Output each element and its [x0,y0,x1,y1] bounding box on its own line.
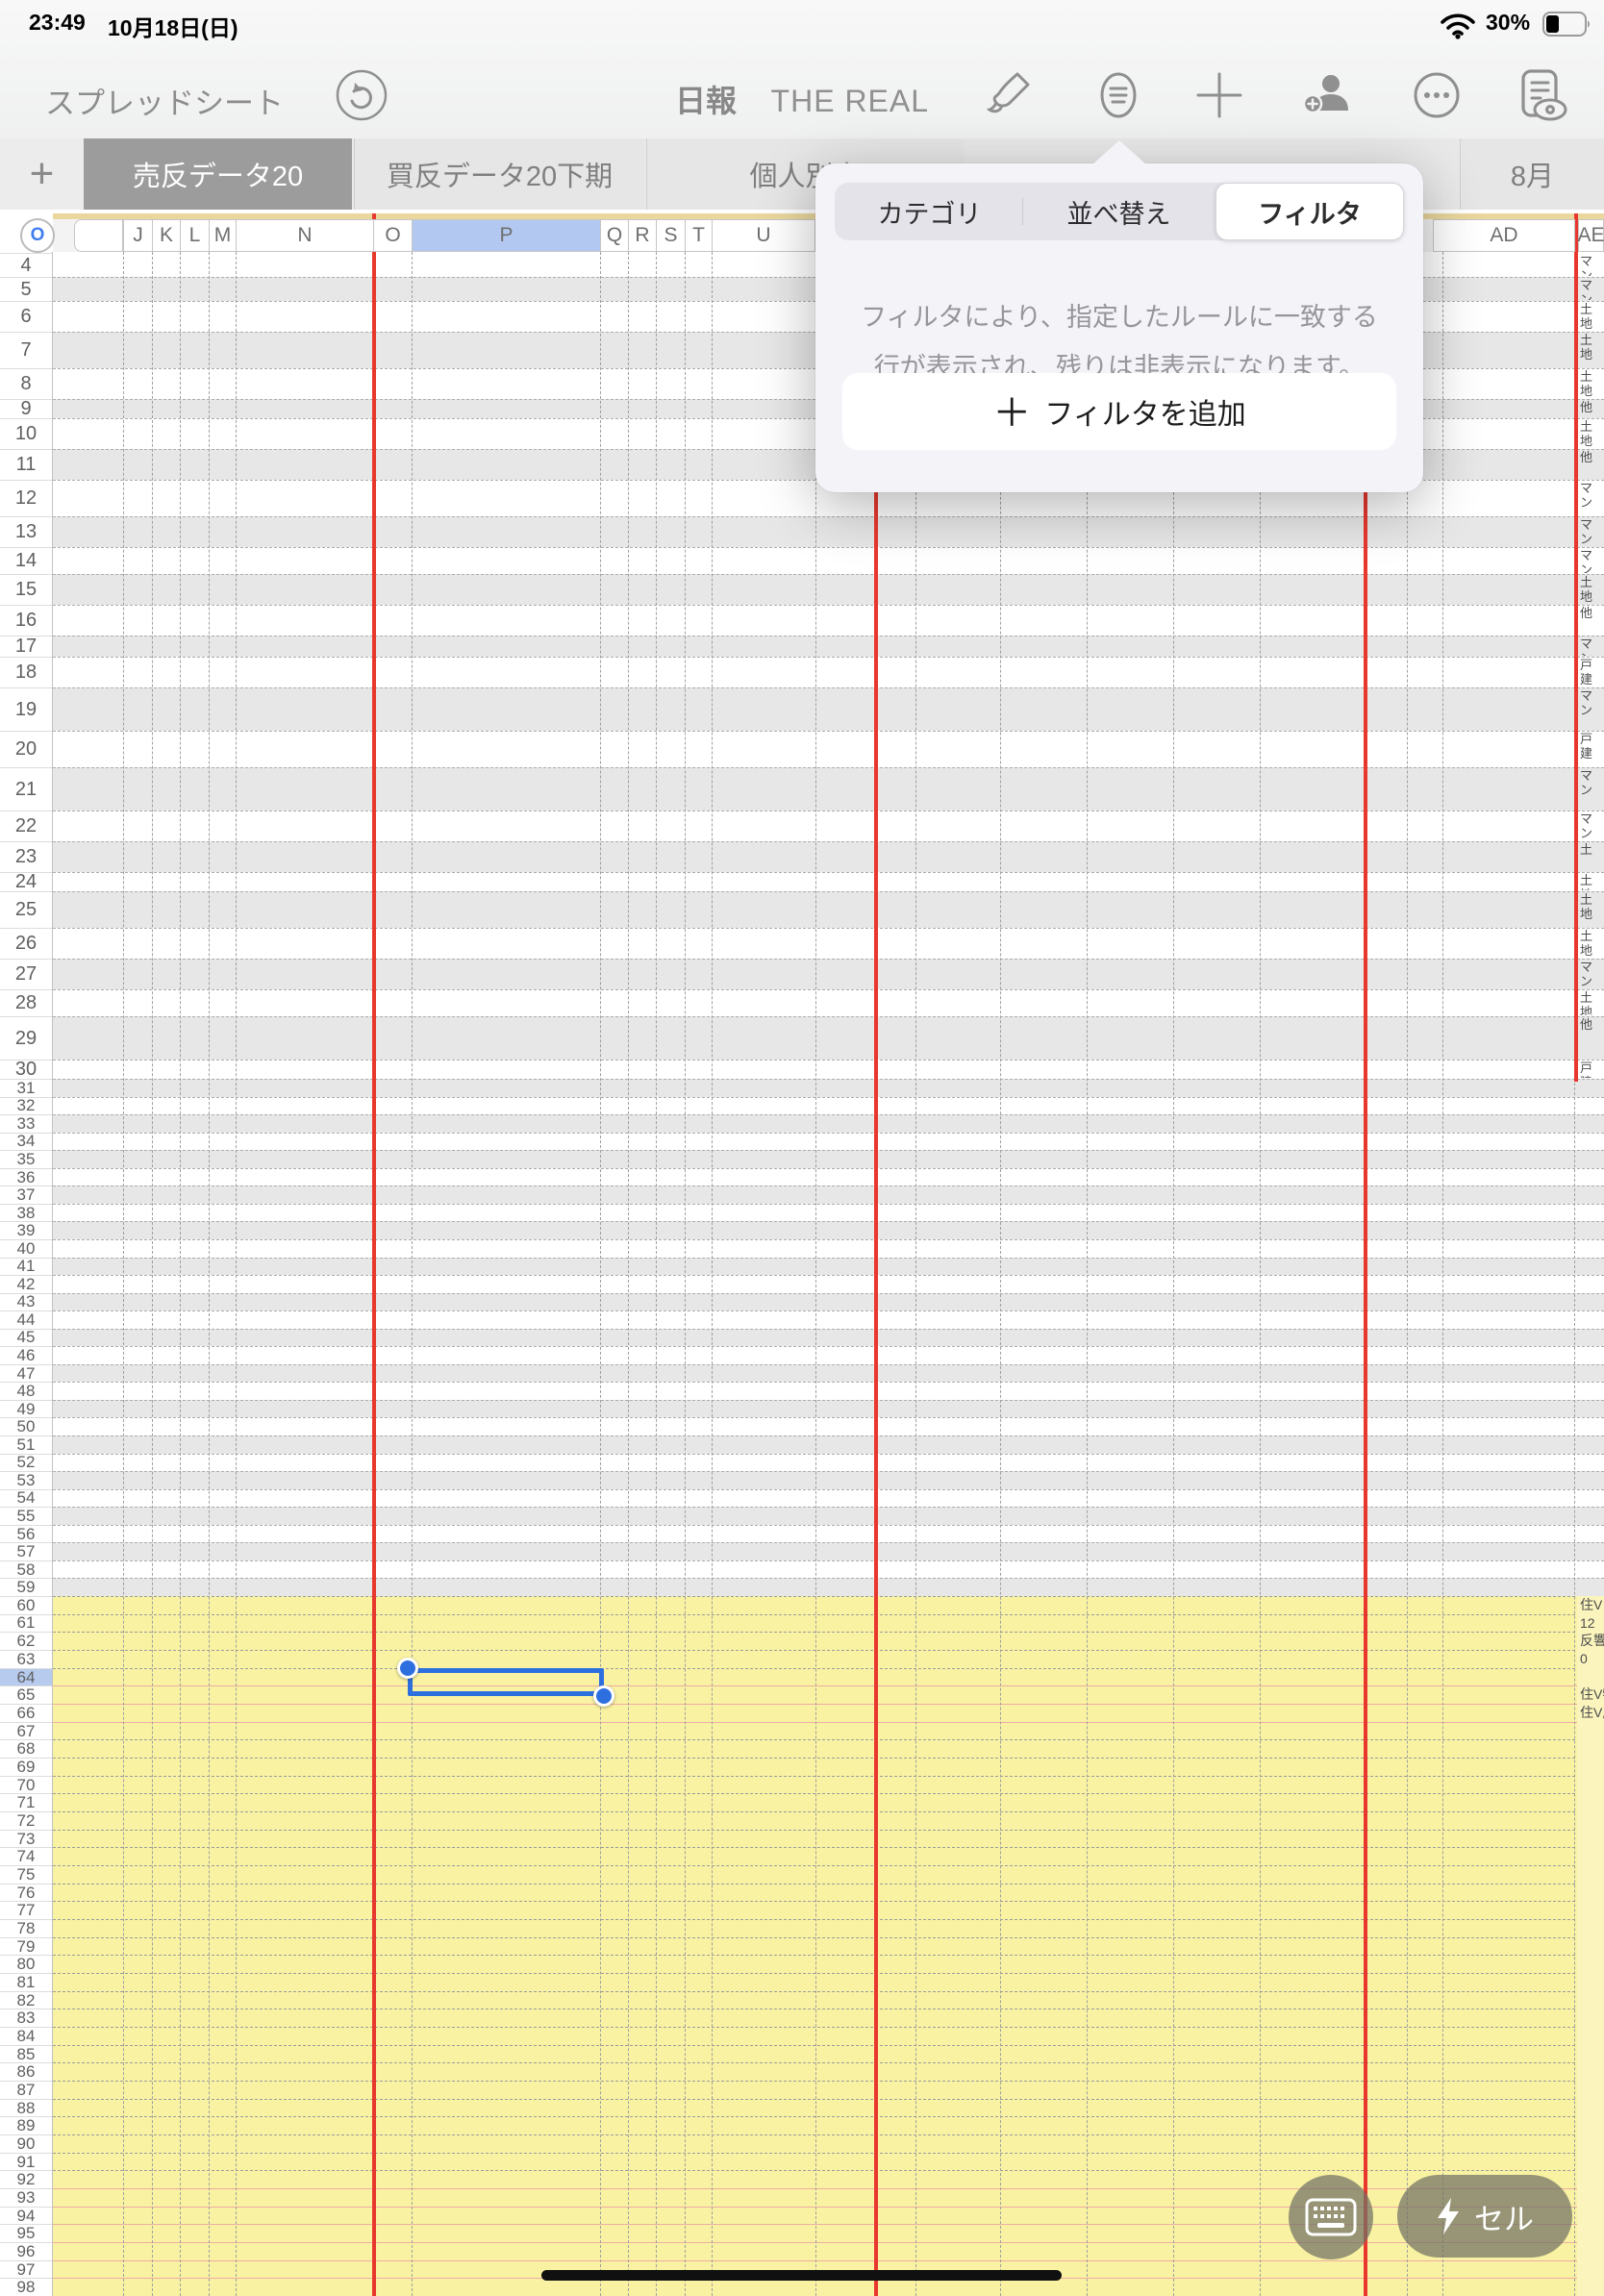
grid-row-70 [53,1776,1604,1794]
grid-vline-17 [1407,252,1408,2296]
grid-vline-14 [1087,252,1088,2296]
grid-row-45 [53,1329,1604,1347]
row-number-72[interactable]: 72 [0,1811,52,1830]
grid-row-86 [53,2062,1604,2081]
grid-row-48 [53,1382,1604,1400]
keyboard-button[interactable] [1289,2175,1373,2259]
selection-handle-top-left[interactable] [397,1658,418,1679]
grid-vline-8 [656,252,657,2296]
column-header-Q[interactable]: Q [600,219,629,252]
ae-cell-row-28[interactable]: 土地 [1580,990,1604,1015]
status-date: 10月18日(日) [108,10,238,42]
column-header-blank[interactable] [74,219,123,252]
row-number-9[interactable]: 9 [0,399,52,418]
ae-cell-row-62[interactable]: 反響 [1580,1634,1604,1650]
row-number-92[interactable]: 92 [0,2170,52,2188]
grid-row-14 [53,547,1604,574]
row-number-37[interactable]: 37 [0,1185,52,1204]
grid-vline-18 [1442,252,1443,2296]
row-number-78[interactable]: 78 [0,1919,52,1937]
row-number-71[interactable]: 71 [0,1793,52,1811]
ae-cell-row-66[interactable]: 住V成 [1580,1706,1604,1722]
grid-vline-16 [1260,252,1261,2296]
column-header-N[interactable]: N [236,219,374,252]
red-guide-line-3 [1364,213,1367,2296]
row-number-82[interactable]: 82 [0,1991,52,2009]
grid-row-65 [53,1685,1604,1704]
row-number-22[interactable]: 22 [0,811,52,841]
sheet-tab-1[interactable]: 売反データ20 [84,138,352,210]
row-number-8[interactable]: 8 [0,368,52,399]
grid-vline-5 [412,252,413,2296]
ae-cell-row-25[interactable]: 土地 [1580,892,1604,927]
grid-row-24 [53,872,1604,891]
grid-row-35 [53,1150,1604,1168]
grid-row-41 [53,1258,1604,1276]
grid-row-51 [53,1435,1604,1454]
row-number-66[interactable]: 66 [0,1704,52,1722]
grid-row-93 [53,2188,1604,2207]
grid-row-71 [53,1793,1604,1811]
add-sheet-button[interactable]: + [0,138,84,210]
ae-cell-row-24[interactable]: 土地 [1580,873,1604,890]
grid-row-17 [53,636,1604,657]
grid-row-68 [53,1739,1604,1758]
select-all-button[interactable]: O [20,218,55,253]
grid-row-87 [53,2081,1604,2099]
ae-cell-row-12[interactable]: マン [1580,481,1604,515]
format-brush-icon[interactable] [983,66,1040,124]
row-number-4[interactable]: 4 [0,253,52,277]
ae-cell-row-22[interactable]: マン [1580,811,1604,840]
wifi-icon [1439,12,1477,39]
row-number-84[interactable]: 84 [0,2027,52,2045]
row-number-90[interactable]: 90 [0,2134,52,2153]
grid-vline-7 [628,252,629,2296]
row-number-52[interactable]: 52 [0,1454,52,1472]
column-header-R[interactable]: R [628,219,657,252]
row-number-43[interactable]: 43 [0,1293,52,1311]
grid-row-82 [53,1991,1604,2009]
row-number-19[interactable]: 19 [0,687,52,731]
row-number-40[interactable]: 40 [0,1239,52,1258]
ae-cell-row-15[interactable]: 土地 [1580,575,1604,604]
red-guide-line-1 [372,213,376,2296]
row-number-23[interactable]: 23 [0,841,52,872]
ae-cell-row-60[interactable]: 住V [1580,1598,1604,1614]
cell-button-label: セル [1474,2195,1534,2238]
row-number-46[interactable]: 46 [0,1346,52,1364]
row-number-38[interactable]: 38 [0,1204,52,1222]
grid-row-31 [53,1079,1604,1097]
sheet-tab-2[interactable]: 買反データ20下期 [354,138,644,210]
grid-row-20 [53,731,1604,767]
row-number-83[interactable]: 83 [0,2009,52,2027]
column-header-U[interactable]: U [712,219,815,252]
row-number-56[interactable]: 56 [0,1525,52,1543]
add-filter-button[interactable]: ＋ フィルタを追加 [842,373,1396,450]
row-number-48[interactable]: 48 [0,1382,52,1400]
cell-action-button[interactable]: セル [1397,2175,1572,2258]
row-number-12[interactable]: 12 [0,480,52,516]
grid-row-59 [53,1578,1604,1596]
grid-row-81 [53,1973,1604,1991]
row-number-36[interactable]: 36 [0,1168,52,1186]
row-number-11[interactable]: 11 [0,449,52,480]
row-number-29[interactable]: 29 [0,1016,52,1060]
grid-row-78 [53,1919,1604,1937]
sheet-tab-4[interactable]: 8月 [1460,138,1604,210]
column-header-L[interactable]: L [180,219,210,252]
grid-row-39 [53,1221,1604,1239]
selection-handle-bottom-right[interactable] [593,1685,614,1707]
row-number-33[interactable]: 33 [0,1114,52,1133]
grid-row-89 [53,2116,1604,2134]
grid-row-47 [53,1364,1604,1383]
ae-cell-row-11[interactable]: 他 [1580,450,1604,479]
ae-cell-row-19[interactable]: マン [1580,688,1604,730]
ae-cell-row-14[interactable]: マン [1580,548,1604,573]
column-header-T[interactable]: T [685,219,713,252]
row-number-97[interactable]: 97 [0,2260,52,2279]
row-number-94[interactable]: 94 [0,2207,52,2225]
grid-vline-1 [152,252,153,2296]
grid-row-76 [53,1884,1604,1902]
grid-row-67 [53,1722,1604,1740]
row-number-60[interactable]: 60 [0,1596,52,1614]
row-number-39[interactable]: 39 [0,1221,52,1239]
ae-cell-row-10[interactable]: 土地 [1580,419,1604,448]
collaborate-icon[interactable] [1298,66,1356,124]
ae-cell-row-7[interactable]: 土地 [1580,333,1604,367]
row-number-24[interactable]: 24 [0,872,52,891]
column-header-O[interactable]: O [373,219,413,252]
grid-row-90 [53,2134,1604,2153]
row-number-16[interactable]: 16 [0,605,52,636]
grid-row-55 [53,1507,1604,1525]
grid-row-98 [53,2278,1604,2296]
grid-row-92 [53,2170,1604,2188]
grid-row-56 [53,1525,1604,1543]
ae-cell-row-21[interactable]: マン [1580,768,1604,810]
grid-row-46 [53,1346,1604,1364]
grid-row-36 [53,1168,1604,1186]
grid-row-88 [53,2099,1604,2117]
grid-row-49 [53,1400,1604,1418]
grid-row-42 [53,1275,1604,1293]
ae-cell-row-6[interactable]: 土地 [1580,302,1604,331]
row-number-73[interactable]: 73 [0,1830,52,1848]
grid-row-60 [53,1596,1604,1614]
row-number-69[interactable]: 69 [0,1758,52,1776]
row-number-27[interactable]: 27 [0,959,52,989]
grid-row-61 [53,1614,1604,1633]
row-number-53[interactable]: 53 [0,1471,52,1489]
ae-cell-row-63[interactable]: 0 [1580,1652,1604,1668]
column-header-M[interactable]: M [209,219,237,252]
add-icon[interactable] [1190,66,1248,124]
column-header-AD[interactable]: AD [1433,219,1575,252]
column-header-AE[interactable]: AE [1578,219,1604,252]
row-number-61[interactable]: 61 [0,1614,52,1633]
row-number-67[interactable]: 67 [0,1722,52,1740]
grid-row-15 [53,574,1604,605]
add-filter-label: フィルタを追加 [1044,390,1245,433]
row-number-91[interactable]: 91 [0,2153,52,2171]
ae-cell-row-29[interactable]: 他 [1580,1017,1604,1059]
ae-cell-row-4[interactable]: マン [1580,254,1604,276]
grid-row-30 [53,1060,1604,1079]
row-number-96[interactable]: 96 [0,2242,52,2260]
row-number-87[interactable]: 87 [0,2081,52,2099]
plus-icon: ＋ [992,382,1031,437]
grid-row-91 [53,2153,1604,2171]
row-number-85[interactable]: 85 [0,2045,52,2063]
ae-cell-row-26[interactable]: 土地 [1580,929,1604,958]
ae-cell-row-13[interactable]: マン [1580,517,1604,546]
grid-row-79 [53,1937,1604,1956]
row-number-44[interactable]: 44 [0,1310,52,1329]
row-number-7[interactable]: 7 [0,332,52,368]
row-number-54[interactable]: 54 [0,1489,52,1508]
grid-row-25 [53,891,1604,928]
row-number-55[interactable]: 55 [0,1507,52,1525]
column-header-S[interactable]: S [656,219,686,252]
grid-vline-9 [685,252,686,2296]
row-number-10[interactable]: 10 [0,418,52,449]
numbers-app-screen: 23:49 10月18日(日) 30% スプレッドシート [0,0,1604,2296]
row-number-57[interactable]: 57 [0,1542,52,1560]
row-number-14[interactable]: 14 [0,547,52,574]
row-number-20[interactable]: 20 [0,731,52,767]
grid-row-19 [53,687,1604,731]
row-number-88[interactable]: 88 [0,2099,52,2117]
grid-vline-6 [600,252,601,2296]
row-number-80[interactable]: 80 [0,1955,52,1973]
grid-vline-11 [815,252,816,2296]
ae-cell-row-17[interactable]: マン [1580,636,1604,656]
home-indicator[interactable] [541,2270,1062,2281]
document-title-main: 日報 [675,84,737,118]
grid-row-37 [53,1185,1604,1204]
row-number-68[interactable]: 68 [0,1739,52,1758]
filter-description-line1: フィルタにより、指定したルールに一致する [837,296,1402,334]
grid-row-57 [53,1542,1604,1560]
grid-row-52 [53,1454,1604,1472]
top-chrome: 23:49 10月18日(日) 30% スプレッドシート [0,0,1604,138]
row-number-51[interactable]: 51 [0,1435,52,1454]
grid-row-50 [53,1417,1604,1435]
row-number-47[interactable]: 47 [0,1364,52,1383]
row-number-89[interactable]: 89 [0,2116,52,2134]
row-number-18[interactable]: 18 [0,657,52,687]
column-header-J[interactable]: J [123,219,153,252]
organize-icon[interactable] [1090,66,1147,124]
grid-row-80 [53,1955,1604,1973]
grid-row-32 [53,1097,1604,1115]
grid-row-28 [53,989,1604,1016]
grid-row-66 [53,1704,1604,1722]
row-number-5[interactable]: 5 [0,277,52,301]
keyboard-icon [1305,2198,1357,2236]
column-header-K[interactable]: K [152,219,181,252]
grid-row-44 [53,1310,1604,1329]
row-number-63[interactable]: 63 [0,1650,52,1668]
row-number-28[interactable]: 28 [0,989,52,1016]
grid-row-64 [53,1668,1604,1686]
grid-row-29 [53,1016,1604,1060]
grid-row-84 [53,2027,1604,2045]
grid-row-40 [53,1239,1604,1258]
row-number-35[interactable]: 35 [0,1150,52,1168]
row-number-81[interactable]: 81 [0,1973,52,1991]
row-number-41[interactable]: 41 [0,1258,52,1276]
ae-cell-row-5[interactable]: マン [1580,278,1604,300]
row-number-70[interactable]: 70 [0,1776,52,1794]
row-number-32[interactable]: 32 [0,1097,52,1115]
row-number-98[interactable]: 98 [0,2278,52,2296]
popover-arrow [1091,140,1147,165]
ae-cell-row-30[interactable]: 戸建 [1580,1061,1604,1078]
grid-row-85 [53,2045,1604,2063]
grid-row-77 [53,1901,1604,1919]
view-options-icon[interactable] [1512,66,1569,124]
grid-row-96 [53,2242,1604,2260]
grid-row-69 [53,1758,1604,1776]
document-title: 日報 THE REAL [0,77,1604,121]
row-number-25[interactable]: 25 [0,891,52,928]
ae-cell-row-18[interactable]: 戸建 [1580,658,1604,686]
row-number-74[interactable]: 74 [0,1847,52,1865]
grid-row-18 [53,657,1604,687]
grid-row-43 [53,1293,1604,1311]
grid-row-73 [53,1830,1604,1848]
ae-cell-row-20[interactable]: 戸建 [1580,732,1604,766]
grid-row-22 [53,811,1604,841]
row-number-34[interactable]: 34 [0,1133,52,1151]
grid-row-62 [53,1632,1604,1650]
row-number-95[interactable]: 95 [0,2224,52,2242]
row-number-86[interactable]: 86 [0,2062,52,2081]
row-number-42[interactable]: 42 [0,1275,52,1293]
ae-cell-row-9[interactable]: 他 [1580,400,1604,417]
grid-row-34 [53,1133,1604,1151]
grid-row-21 [53,767,1604,811]
grid-row-23 [53,841,1604,872]
red-guide-line-2 [874,213,878,2296]
document-title-sub: THE REAL [771,84,929,118]
grid-row-26 [53,928,1604,959]
grid-vline-3 [209,252,210,2296]
row-number-58[interactable]: 58 [0,1560,52,1579]
ae-cell-row-23[interactable]: 土 [1580,842,1604,871]
row-number-15[interactable]: 15 [0,574,52,605]
grid-row-13 [53,516,1604,547]
column-header-P[interactable]: P [412,219,601,252]
popover-segment-3[interactable]: フィルタ [1216,183,1404,240]
row-number-17[interactable]: 17 [0,636,52,657]
grid-vline-15 [1173,252,1174,2296]
row-number-62[interactable]: 62 [0,1632,52,1650]
grid-row-38 [53,1204,1604,1222]
status-time: 23:49 [29,10,86,36]
battery-icon [1542,12,1592,37]
row-number-79[interactable]: 79 [0,1937,52,1956]
cell-selection-border[interactable] [408,1668,604,1696]
ae-cell-row-61[interactable]: 12 [1580,1616,1604,1633]
grid-vline-13 [1000,252,1001,2296]
grid-row-58 [53,1560,1604,1579]
row-number-65[interactable]: 65 [0,1685,52,1704]
battery-percent: 30% [1486,10,1530,36]
red-guide-line-4 [1574,213,1578,1082]
grid-vline-10 [712,252,713,2296]
grid-row-83 [53,2009,1604,2027]
grid-row-75 [53,1865,1604,1884]
grid-row-63 [53,1650,1604,1668]
row-number-6[interactable]: 6 [0,301,52,332]
ae-cell-row-27[interactable]: マン [1580,960,1604,988]
ae-cell-row-16[interactable]: 他 [1580,606,1604,635]
row-number-30[interactable]: 30 [0,1060,52,1079]
grid-row-72 [53,1811,1604,1830]
row-number-49[interactable]: 49 [0,1400,52,1418]
grid-vline-0 [123,252,124,2296]
row-number-13[interactable]: 13 [0,516,52,547]
grid-row-54 [53,1489,1604,1508]
row-number-77[interactable]: 77 [0,1901,52,1919]
ae-cell-row-8[interactable]: 土地 [1580,369,1604,398]
row-number-21[interactable]: 21 [0,767,52,811]
more-icon[interactable] [1408,66,1466,124]
lightning-icon [1436,2198,1474,2234]
grid-vline-4 [236,252,237,2296]
grid-row-74 [53,1847,1604,1865]
ae-cell-row-65[interactable]: 住V物 [1580,1687,1604,1704]
row-number-31[interactable]: 31 [0,1079,52,1097]
row-number-93[interactable]: 93 [0,2188,52,2207]
grid-row-16 [53,605,1604,636]
row-number-45[interactable]: 45 [0,1329,52,1347]
popover-segment-1[interactable]: カテゴリ [835,183,1024,240]
row-number-75[interactable]: 75 [0,1865,52,1884]
grid-row-53 [53,1471,1604,1489]
grid-vline-2 [180,252,181,2296]
row-number-64[interactable]: 64 [0,1668,52,1686]
grid-row-27 [53,959,1604,989]
grid-row-33 [53,1114,1604,1133]
grid-vline-12 [915,252,916,2296]
row-number-59[interactable]: 59 [0,1578,52,1596]
row-number-76[interactable]: 76 [0,1884,52,1902]
row-number-50[interactable]: 50 [0,1417,52,1435]
popover-segment-2[interactable]: 並べ替え [1024,183,1214,240]
row-number-26[interactable]: 26 [0,928,52,959]
